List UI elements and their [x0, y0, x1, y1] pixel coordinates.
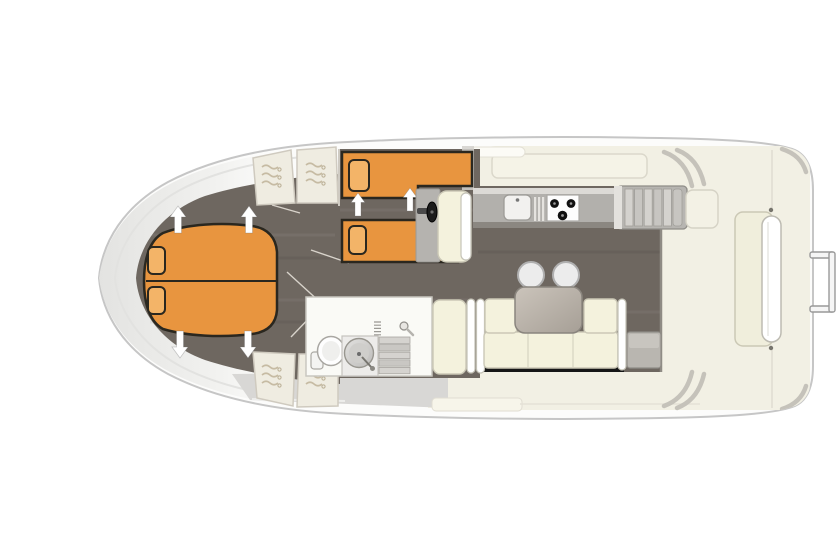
stool [553, 262, 579, 288]
galley-counter-shadow [473, 222, 618, 228]
pillow [349, 226, 366, 254]
boat-floor-plan [0, 0, 840, 560]
wardrobe-panel [253, 352, 295, 406]
basin-drain [357, 352, 361, 356]
bench-hinge [769, 208, 773, 212]
pillow [148, 287, 165, 314]
side-bench [433, 300, 466, 374]
dining-table [515, 287, 582, 333]
bow-cabin-berth [144, 224, 277, 336]
deck-console [686, 190, 718, 228]
pillow [349, 160, 369, 191]
sofa-back-cushion [485, 299, 517, 333]
galley [473, 188, 618, 228]
galley-counter-highlight [473, 188, 618, 194]
sofa-seat [484, 332, 618, 368]
bathroom-entry-steps [379, 337, 410, 374]
helm-seat-edge [461, 193, 471, 260]
burner-cap [570, 202, 573, 205]
sofa-back-cushion [584, 299, 617, 333]
storage-bench-top [629, 334, 659, 348]
basin-faucet-knob [370, 366, 375, 371]
galley-faucet [516, 198, 520, 202]
armrest [467, 299, 475, 373]
aft-bench-backrest-roll [762, 216, 781, 342]
floor-plan-canvas [0, 0, 840, 560]
armrest [618, 299, 626, 370]
drainboard [534, 197, 544, 221]
bathroom [306, 297, 432, 376]
toilet-bowl-inner [322, 341, 340, 361]
pillow [148, 247, 165, 274]
helm-console [416, 189, 440, 262]
burner-cap [561, 214, 564, 217]
wheel-hub [430, 210, 433, 213]
helm-station [416, 189, 471, 262]
deck-locker-top [492, 154, 647, 178]
burner-cap [553, 202, 556, 205]
stool [518, 262, 544, 288]
bench-hinge [769, 346, 773, 350]
companionway-steps [614, 186, 687, 229]
deck-hatch-bottom [432, 398, 522, 411]
